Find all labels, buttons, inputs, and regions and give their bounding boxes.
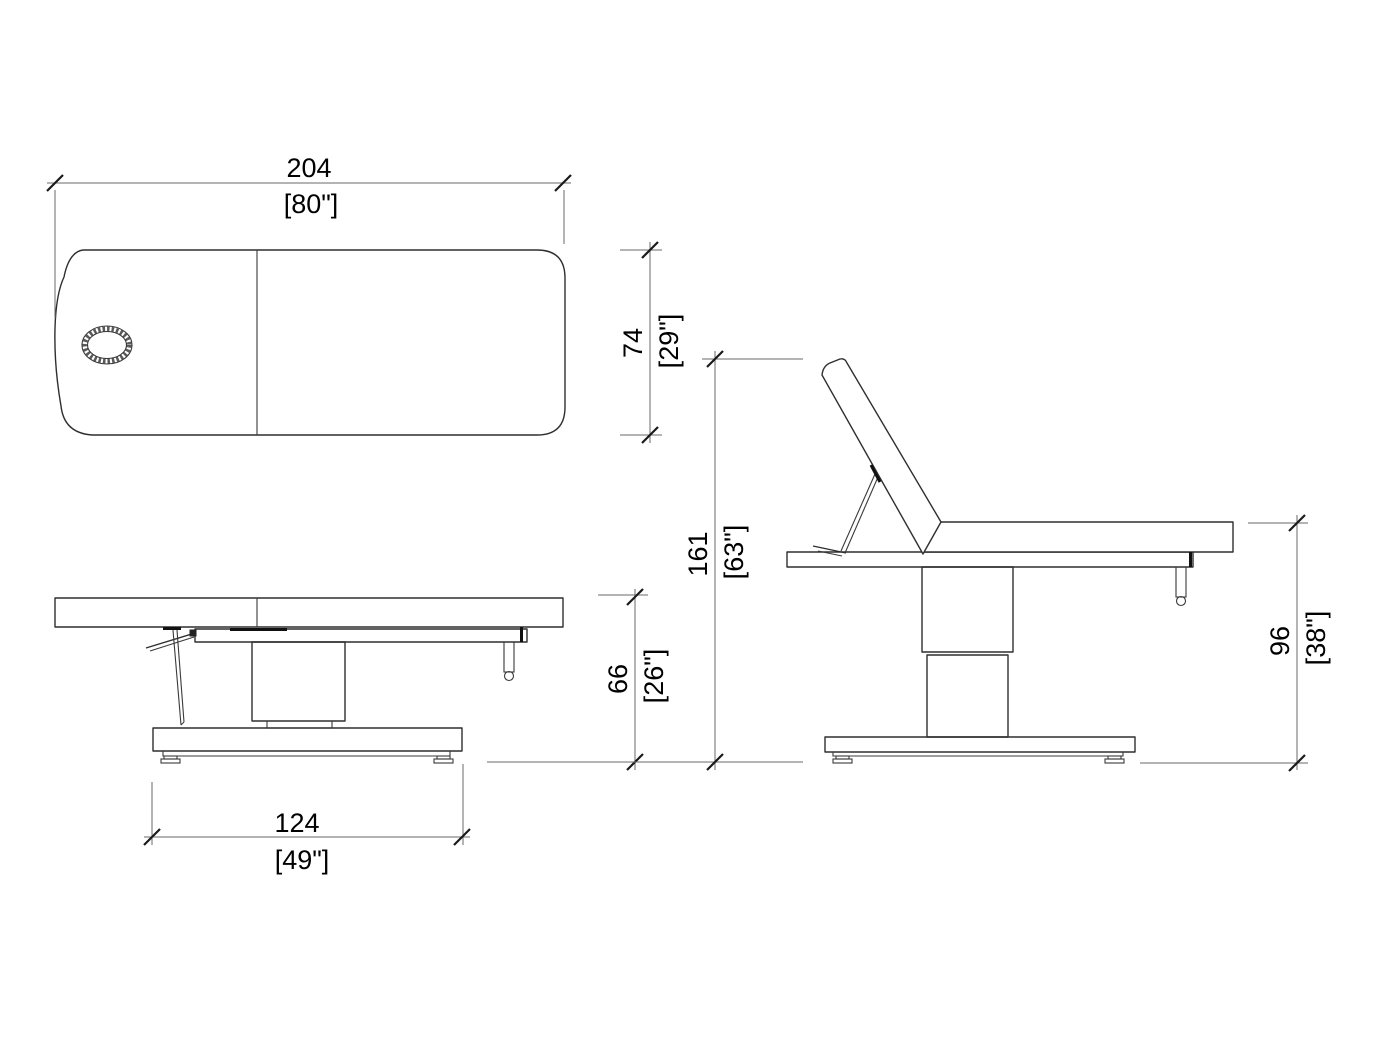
front-foot-pedal [504, 642, 514, 681]
dimension-drawing: 204 [80"] 74 [29"] [0, 0, 1383, 1038]
face-hole-icon [82, 326, 132, 364]
side-foot-pedal [1176, 567, 1186, 606]
side-pedestal-upper-column [922, 567, 1013, 652]
dimension-value-in: [29"] [654, 314, 684, 369]
front-support-strut [173, 630, 184, 725]
dimension-value-in: [63"] [719, 525, 749, 580]
dimension-value-in: [80"] [284, 189, 339, 219]
side-view [787, 359, 1233, 763]
front-pedestal-stub [267, 721, 332, 728]
dimension-value-cm: 74 [618, 328, 648, 358]
side-underframe [787, 552, 1193, 567]
dimension-base-length: 124 [49"] [144, 764, 470, 875]
front-base-lip [163, 751, 450, 756]
dimension-value-cm: 66 [603, 664, 633, 694]
front-base [153, 728, 462, 751]
front-view [55, 598, 563, 763]
top-view [55, 250, 565, 435]
side-base [825, 737, 1135, 752]
dimension-value-in: [26"] [639, 649, 669, 704]
dimension-max-height: 96 [38"] [1140, 515, 1331, 771]
side-feet [833, 756, 1124, 763]
dimension-value-in: [38"] [1301, 611, 1331, 666]
dimension-value-cm: 96 [1265, 626, 1295, 656]
drawing-canvas: 204 [80"] 74 [29"] [0, 0, 1383, 1038]
front-tabletop [55, 598, 563, 627]
dimension-overall-length: 204 [80"] [47, 153, 571, 318]
side-backrest-strut [813, 465, 880, 556]
dimension-backrest-height: 161 [63"] [487, 351, 803, 770]
dimension-overall-width: 74 [29"] [618, 242, 684, 443]
dimension-value-cm: 204 [286, 153, 331, 183]
dimension-min-height: 66 [26"] [598, 589, 669, 770]
dimension-value-cm: 124 [274, 808, 319, 838]
dimension-value-in: [49"] [275, 845, 330, 875]
dimension-value-cm: 161 [683, 531, 713, 576]
front-feet [161, 756, 453, 763]
front-pedestal-column [252, 642, 345, 721]
front-release-lever [146, 630, 197, 652]
side-seat-cushion [922, 522, 1233, 552]
side-backrest-cushion [822, 359, 941, 554]
side-pedestal-lower-column [927, 655, 1008, 737]
